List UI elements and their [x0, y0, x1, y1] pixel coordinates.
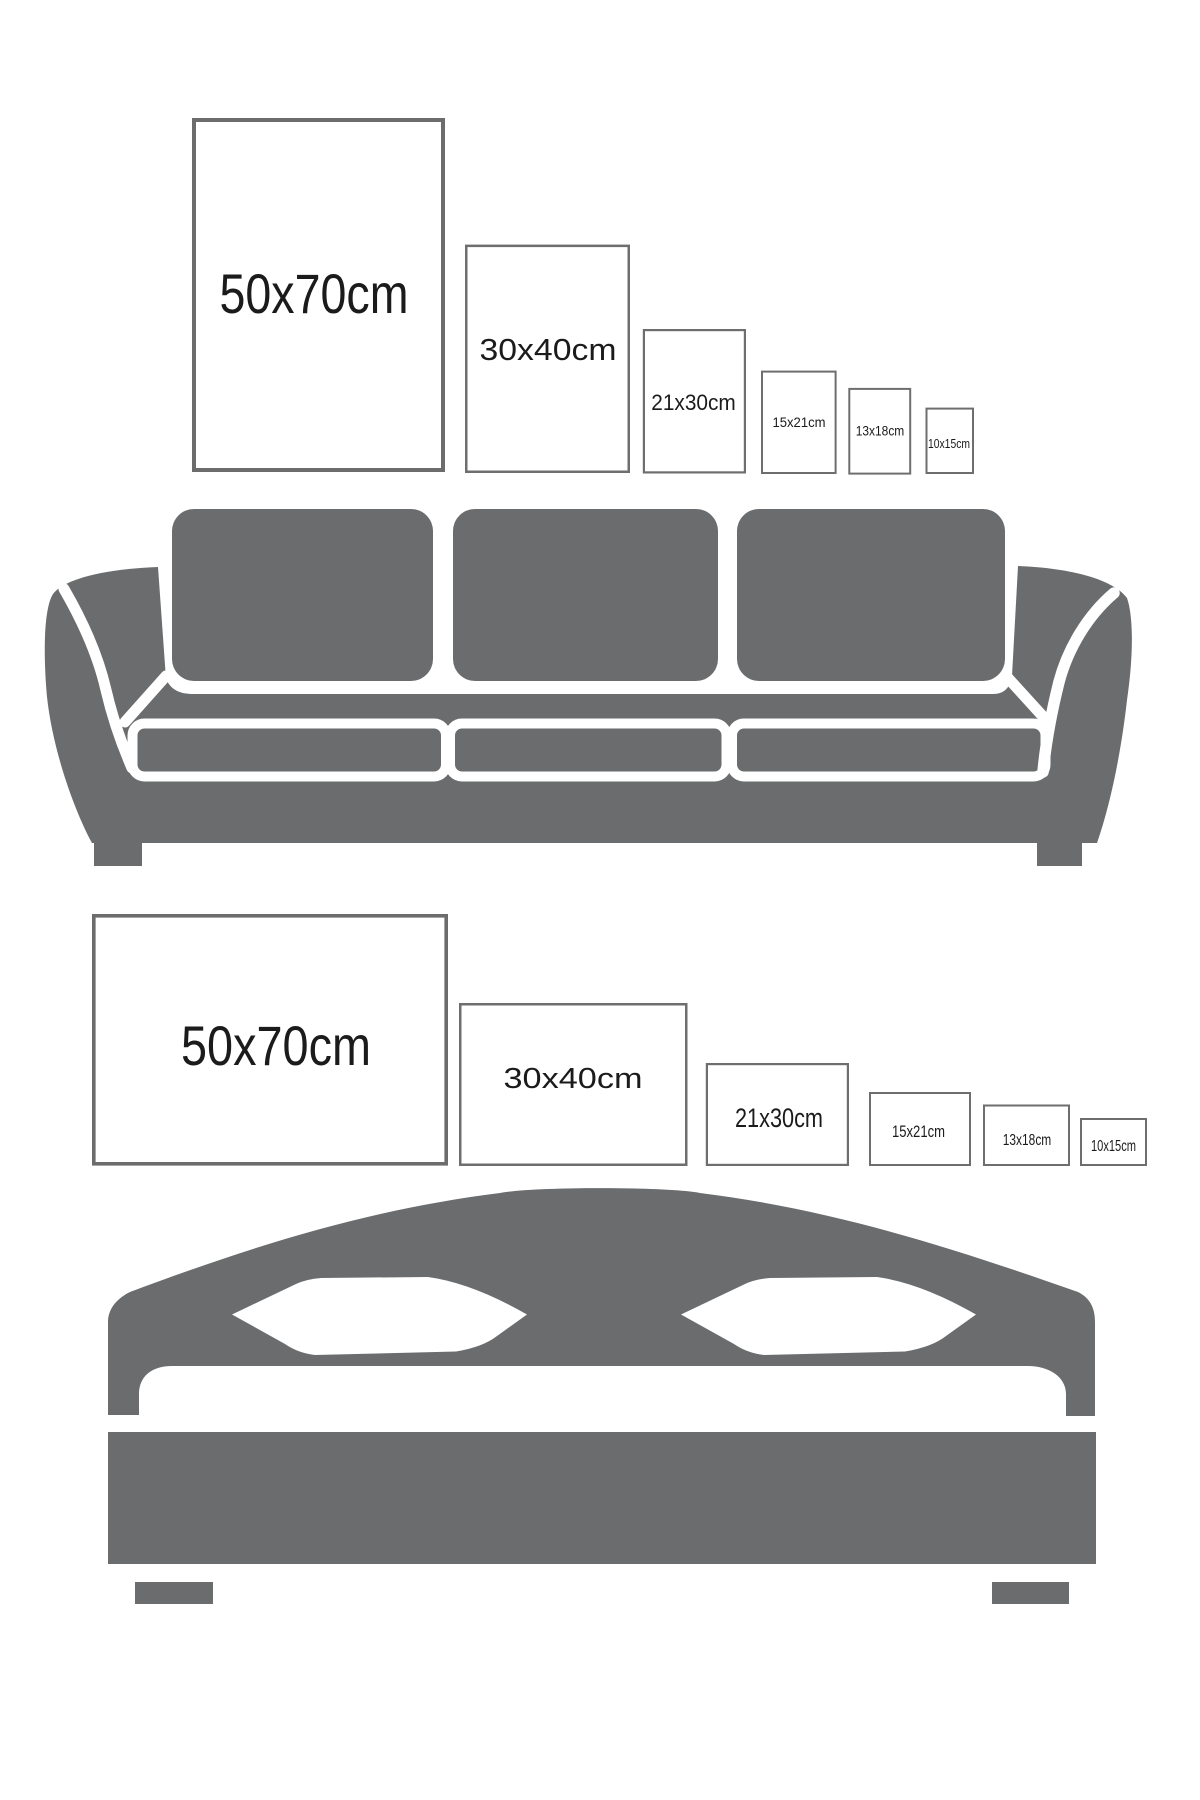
svg-text:50x70cm: 50x70cm — [181, 1014, 371, 1077]
svg-text:10x15cm: 10x15cm — [1091, 1138, 1136, 1155]
svg-text:21x30cm: 21x30cm — [735, 1103, 823, 1133]
svg-text:30x40cm: 30x40cm — [504, 1063, 643, 1095]
svg-text:50x70cm: 50x70cm — [220, 262, 409, 325]
svg-text:13x18cm: 13x18cm — [1003, 1132, 1052, 1149]
svg-text:13x18cm: 13x18cm — [856, 424, 905, 439]
svg-text:15x21cm: 15x21cm — [892, 1123, 945, 1141]
svg-text:21x30cm: 21x30cm — [651, 390, 736, 415]
svg-text:30x40cm: 30x40cm — [480, 332, 617, 367]
svg-text:15x21cm: 15x21cm — [773, 415, 826, 430]
svg-text:10x15cm: 10x15cm — [928, 436, 970, 451]
